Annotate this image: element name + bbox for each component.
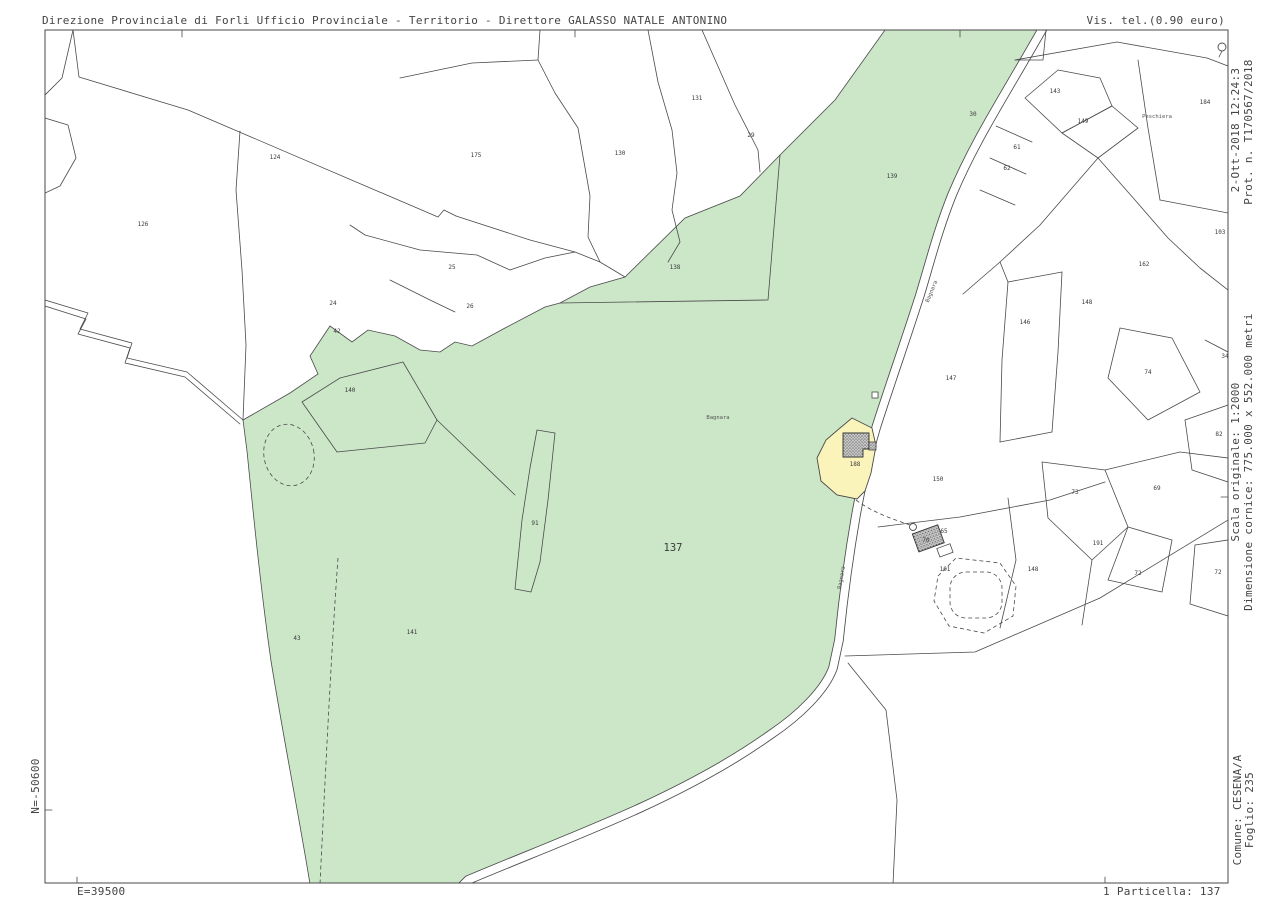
parcel-label: 162 <box>1139 261 1150 268</box>
parcel-label: 147 <box>946 375 957 382</box>
parcel-label: 72 <box>1134 570 1142 577</box>
well-symbol <box>910 524 917 531</box>
parcel-label: 65 <box>940 528 948 535</box>
parcel-label: 24 <box>329 300 337 307</box>
parcel-label: 140 <box>345 387 356 394</box>
parcel-label: 73 <box>1071 489 1079 496</box>
parcel-label: 42 <box>333 328 341 335</box>
parcel-label: 82 <box>1215 431 1223 438</box>
parcel-label: 141 <box>407 629 418 636</box>
margin-frame-size: Dimensione cornice: 775.000 x 552.000 me… <box>1242 313 1255 611</box>
parcel-label: 62 <box>1003 165 1011 172</box>
header-office-title: Direzione Provinciale di Forli Ufficio P… <box>42 14 727 27</box>
map-content: 1241261751301312913913825262442140301431… <box>45 28 1229 886</box>
locality-label: Bagnara <box>706 415 729 421</box>
parcel-label: 30 <box>969 111 977 118</box>
parcel-label: 70 <box>922 537 930 544</box>
parcel-label: 25 <box>448 264 456 271</box>
parcel-label: 148 <box>1028 566 1039 573</box>
margin-foglio: Foglio: 235 <box>1243 772 1256 848</box>
margin-east-coordinate: E=39500 <box>77 885 125 898</box>
margin-particella: 1 Particella: 137 <box>1103 885 1221 898</box>
parcel-label: 91 <box>531 520 539 527</box>
parcel-label: 149 <box>1078 118 1089 125</box>
margin-scale: Scala originale: 1:2000 <box>1229 382 1242 541</box>
parcel-label: 61 <box>1013 144 1021 151</box>
parcel-label: 124 <box>270 154 281 161</box>
parcel-label: 103 <box>1215 229 1226 236</box>
parcel-label: 43 <box>293 635 301 642</box>
parcel-label: 69 <box>1153 485 1161 492</box>
parcel-label: 130 <box>615 150 626 157</box>
parcel-label: 184 <box>1200 99 1211 106</box>
parcel-label: 138 <box>670 264 681 271</box>
parcel-label: 139 <box>887 173 898 180</box>
parcel-label: 150 <box>933 476 944 483</box>
cadastral-map-page: 1241261751301312913913825262442140301431… <box>0 0 1280 907</box>
building-group-70 <box>856 500 953 563</box>
parcel-label: 143 <box>1050 88 1061 95</box>
parcel-label: 131 <box>692 95 703 102</box>
survey-mark-icon <box>1218 43 1226 51</box>
parcel-label: 74 <box>1144 369 1152 376</box>
parcel-label: 148 <box>1082 299 1093 306</box>
margin-north-coordinate: N=-50600 <box>29 758 42 813</box>
parcel-label: 72 <box>1214 569 1222 576</box>
header-visura-cost: Vis. tel.(0.90 euro) <box>1087 14 1225 27</box>
margin-date: 2-Ott-2018 12:24:3 <box>1229 68 1242 193</box>
parcel-label: 26 <box>466 303 474 310</box>
margin-protocol: Prot. n. T170567/2018 <box>1242 59 1255 204</box>
parcel-label: 188 <box>850 461 861 468</box>
locality-label: Peschiera <box>1142 114 1172 120</box>
parcel-label: 191 <box>1093 540 1104 547</box>
parcel-label: 146 <box>1020 319 1031 326</box>
parcel-label: 101 <box>940 566 951 573</box>
parcel-label: 126 <box>138 221 149 228</box>
parcel-label: 175 <box>471 152 482 159</box>
cadastral-map-canvas: 1241261751301312913913825262442140301431… <box>0 0 1280 907</box>
parcel-selected-label: 137 <box>664 542 683 554</box>
parcel-label: 29 <box>747 132 755 139</box>
selected-parcel-137-area <box>243 30 1045 884</box>
